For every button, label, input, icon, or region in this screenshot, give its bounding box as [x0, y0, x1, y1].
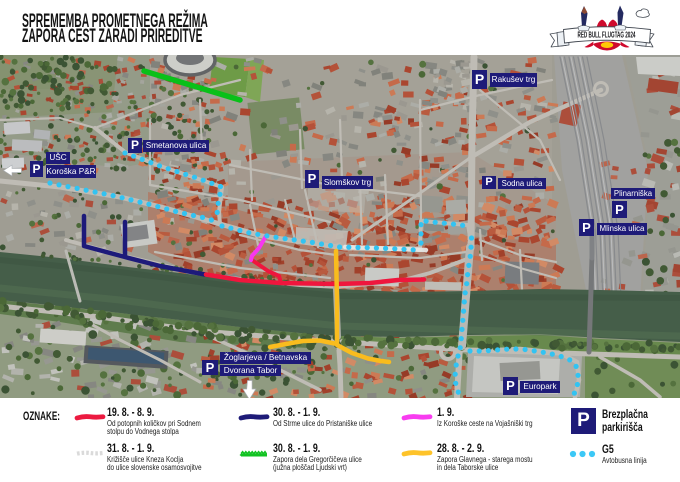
- svg-text:RED BULL FLUGTAG 2024: RED BULL FLUGTAG 2024: [578, 30, 636, 40]
